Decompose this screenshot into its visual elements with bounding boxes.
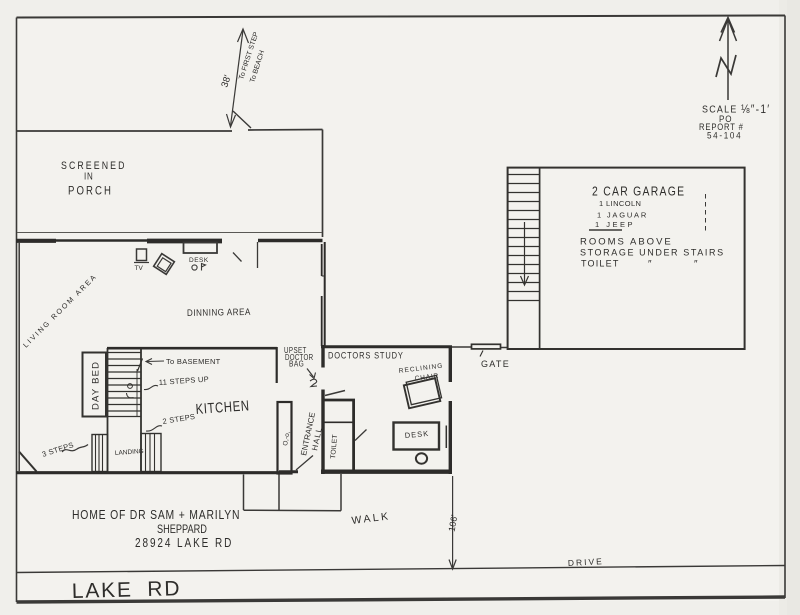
svg-text:1 JAGUAR: 1 JAGUAR	[597, 211, 648, 220]
svg-text:To BASEMENT: To BASEMENT	[166, 357, 221, 366]
svg-text:TOILET: TOILET	[581, 259, 620, 269]
svg-text:2 CAR GARAGE: 2 CAR GARAGE	[592, 184, 685, 198]
svg-text:BAG: BAG	[289, 359, 304, 369]
svg-text:PORCH: PORCH	[68, 185, 113, 198]
svg-text:28924 LAKE RD: 28924 LAKE RD	[135, 537, 233, 550]
svg-text:1 JEEP: 1 JEEP	[595, 220, 635, 229]
svg-text:ROOMS ABOVE: ROOMS ABOVE	[580, 237, 673, 248]
svg-text:SCREENED: SCREENED	[61, 160, 127, 172]
svg-text:TV: TV	[135, 265, 144, 272]
svg-text:STORAGE UNDER STAIRS: STORAGE UNDER STAIRS	[580, 248, 725, 258]
svg-text:″: ″	[648, 259, 652, 270]
svg-text:54-104: 54-104	[707, 130, 742, 141]
svg-text:DESK: DESK	[189, 257, 209, 264]
svg-text:″: ″	[694, 259, 698, 270]
svg-text:DRIVE: DRIVE	[568, 556, 604, 568]
svg-text:DINNING AREA: DINNING AREA	[187, 306, 251, 318]
svg-text:1 LINCOLN: 1 LINCOLN	[599, 199, 641, 208]
svg-text:LAKE RD: LAKE RD	[72, 577, 182, 603]
svg-text:GATE: GATE	[481, 359, 510, 369]
svg-text:DAY BED: DAY BED	[91, 361, 102, 410]
svg-text:HOME OF DR SAM + MARILYN: HOME OF DR SAM + MARILYN	[72, 508, 240, 522]
svg-text:IN: IN	[84, 171, 94, 182]
svg-text:DOCTORS STUDY: DOCTORS STUDY	[328, 351, 404, 361]
svg-text:SHEPPARD: SHEPPARD	[157, 524, 207, 536]
svg-text:⅛″-1′: ⅛″-1′	[741, 103, 770, 116]
